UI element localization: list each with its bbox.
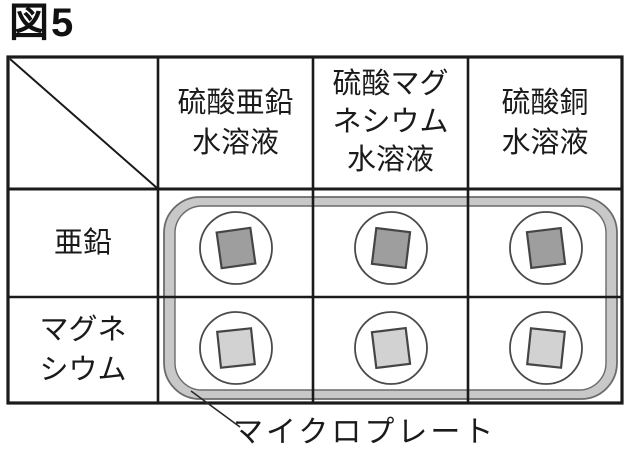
well-row-magnesium xyxy=(200,312,582,384)
metal-chip-zinc xyxy=(217,228,256,268)
microplate-label: マイクロプレート xyxy=(233,407,496,451)
metal-chip-zinc xyxy=(527,228,565,268)
column-header-zinc-sulfate: 硫酸亜鉛 水溶液 xyxy=(158,57,313,189)
column-header-copper-sulfate: 硫酸銅 水溶液 xyxy=(468,57,622,189)
row-header-zinc: 亜鉛 xyxy=(8,189,158,297)
metal-chip-zinc xyxy=(372,228,410,268)
metal-chip-magnesium xyxy=(217,328,255,367)
figure-title: 図5 xyxy=(9,1,75,45)
well-row-zinc xyxy=(200,212,582,284)
column-header-magnesium-sulfate: 硫酸マグ ネシウム 水溶液 xyxy=(313,57,468,189)
corner-cell-diagonal xyxy=(10,59,157,188)
figure-5-diagram: 図5 硫酸亜鉛 水溶液 硫酸マグ ネシウム 水溶液 硫酸銅 水溶液 亜鉛 マグネ… xyxy=(0,0,640,451)
metal-chip-magnesium xyxy=(527,328,565,367)
metal-chip-magnesium xyxy=(372,328,410,368)
row-header-magnesium: マグネ シウム xyxy=(8,297,158,403)
